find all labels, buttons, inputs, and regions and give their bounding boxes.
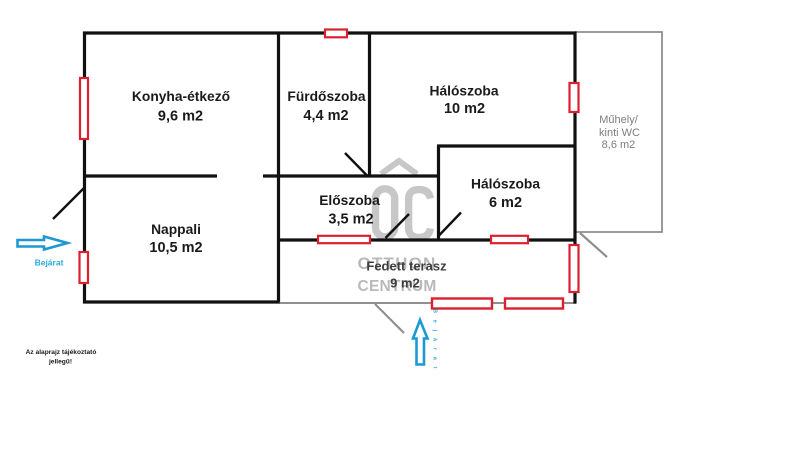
svg-text:Bejárat: Bejárat — [432, 309, 438, 375]
svg-text:Előszoba: Előszoba — [319, 193, 380, 208]
svg-text:3,5 m2: 3,5 m2 — [328, 212, 373, 228]
svg-text:kinti WC: kinti WC — [599, 127, 640, 139]
svg-text:6 m2: 6 m2 — [489, 195, 522, 211]
svg-text:Műhely/: Műhely/ — [599, 114, 638, 126]
svg-text:Az alaprajz tájékoztató: Az alaprajz tájékoztató — [26, 349, 97, 356]
svg-text:9 m2: 9 m2 — [390, 276, 420, 291]
svg-text:10 m2: 10 m2 — [444, 101, 485, 117]
svg-text:jellegű!: jellegű! — [48, 359, 72, 366]
svg-text:Hálószoba: Hálószoba — [471, 176, 540, 191]
svg-text:Fürdőszoba: Fürdőszoba — [287, 89, 366, 104]
svg-text:8,6 m2: 8,6 m2 — [602, 139, 636, 151]
svg-text:Fedett terasz: Fedett terasz — [366, 259, 447, 274]
svg-text:Nappali: Nappali — [151, 222, 201, 237]
svg-text:Bejárat: Bejárat — [35, 258, 64, 268]
svg-text:9,6 m2: 9,6 m2 — [158, 109, 203, 125]
svg-text:4,4 m2: 4,4 m2 — [303, 108, 348, 124]
svg-text:Hálószoba: Hálószoba — [430, 84, 499, 99]
svg-text:10,5 m2: 10,5 m2 — [149, 240, 202, 256]
svg-text:Konyha-étkező: Konyha-étkező — [132, 89, 230, 104]
